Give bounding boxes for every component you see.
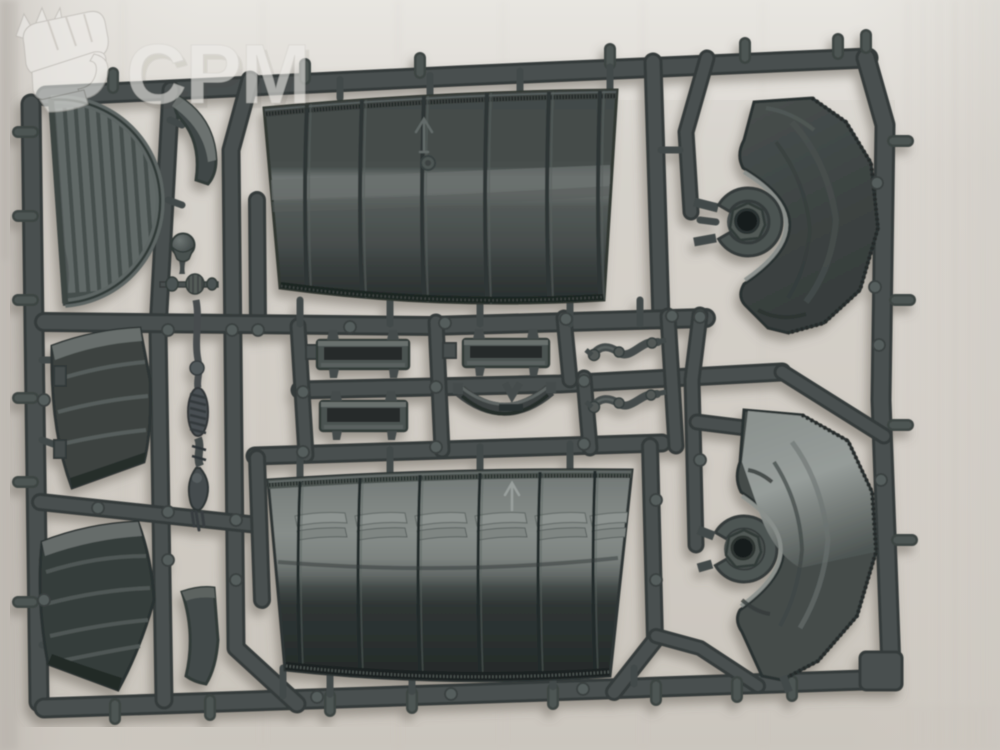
svg-text:CPM: CPM (126, 27, 310, 121)
